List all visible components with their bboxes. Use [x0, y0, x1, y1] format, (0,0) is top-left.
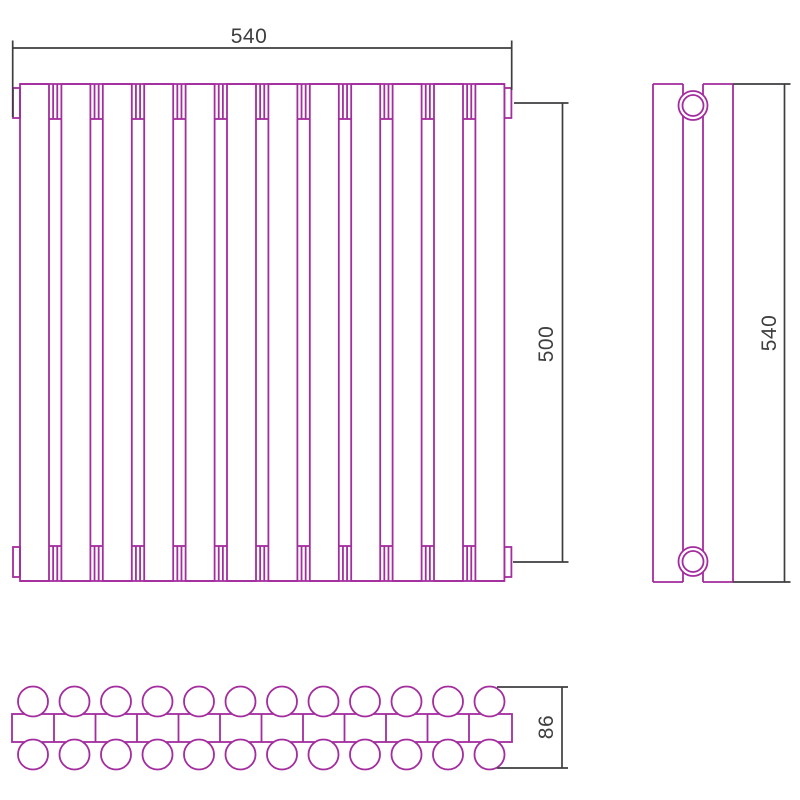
dimension-label: 500	[535, 326, 558, 363]
tube-section	[226, 740, 256, 770]
tube-section	[350, 687, 380, 717]
connection-tab	[13, 88, 20, 118]
radiator-column	[20, 84, 49, 581]
tube-section	[60, 687, 90, 717]
tube-section	[267, 740, 297, 770]
tube-section	[143, 687, 173, 717]
technical-drawing: 54050054086	[0, 0, 800, 800]
tube-section	[60, 740, 90, 770]
dim-connection-height: 500	[513, 103, 569, 562]
radiator-column	[310, 84, 339, 581]
tube-section	[433, 687, 463, 717]
radiator-column	[434, 84, 463, 581]
tube-section	[101, 740, 131, 770]
tube-section	[267, 687, 297, 717]
tube-section	[184, 740, 214, 770]
radiator-column	[103, 84, 132, 581]
radiator-column	[475, 84, 504, 581]
dim-overall-width: 540	[13, 25, 512, 117]
tube-section	[18, 740, 48, 770]
side-view	[653, 84, 733, 582]
dimension-annotations: 54050054086	[13, 25, 791, 768]
front-view	[13, 84, 511, 581]
connection-tab	[504, 547, 511, 577]
dim-depth: 86	[497, 687, 568, 768]
dimension-label: 86	[535, 715, 558, 739]
tube-section	[309, 687, 339, 717]
top-view	[12, 687, 512, 770]
tube-section	[101, 687, 131, 717]
tube-section	[392, 740, 422, 770]
radiator-column	[144, 84, 173, 581]
radiator-column	[268, 84, 297, 581]
tube-section	[475, 687, 505, 717]
tube-section	[309, 740, 339, 770]
bushing-inner	[683, 95, 704, 116]
tube-section	[18, 687, 48, 717]
radiator-column	[227, 84, 256, 581]
connection-tab	[13, 547, 20, 577]
tube-section	[226, 687, 256, 717]
tube-section	[184, 687, 214, 717]
drawing-svg: 54050054086	[0, 0, 800, 800]
radiator-column	[351, 84, 380, 581]
bushing-inner	[683, 551, 704, 572]
tube-section	[475, 740, 505, 770]
dimension-label: 540	[758, 315, 781, 352]
dimension-label: 540	[231, 25, 268, 48]
radiator-column	[186, 84, 215, 581]
tube-section	[143, 740, 173, 770]
radiator-column	[61, 84, 90, 581]
connection-tab	[504, 88, 511, 118]
tube-section	[392, 687, 422, 717]
tube-section	[433, 740, 463, 770]
radiator-column	[393, 84, 422, 581]
tube-section	[350, 740, 380, 770]
dim-side-height: 540	[733, 84, 791, 582]
